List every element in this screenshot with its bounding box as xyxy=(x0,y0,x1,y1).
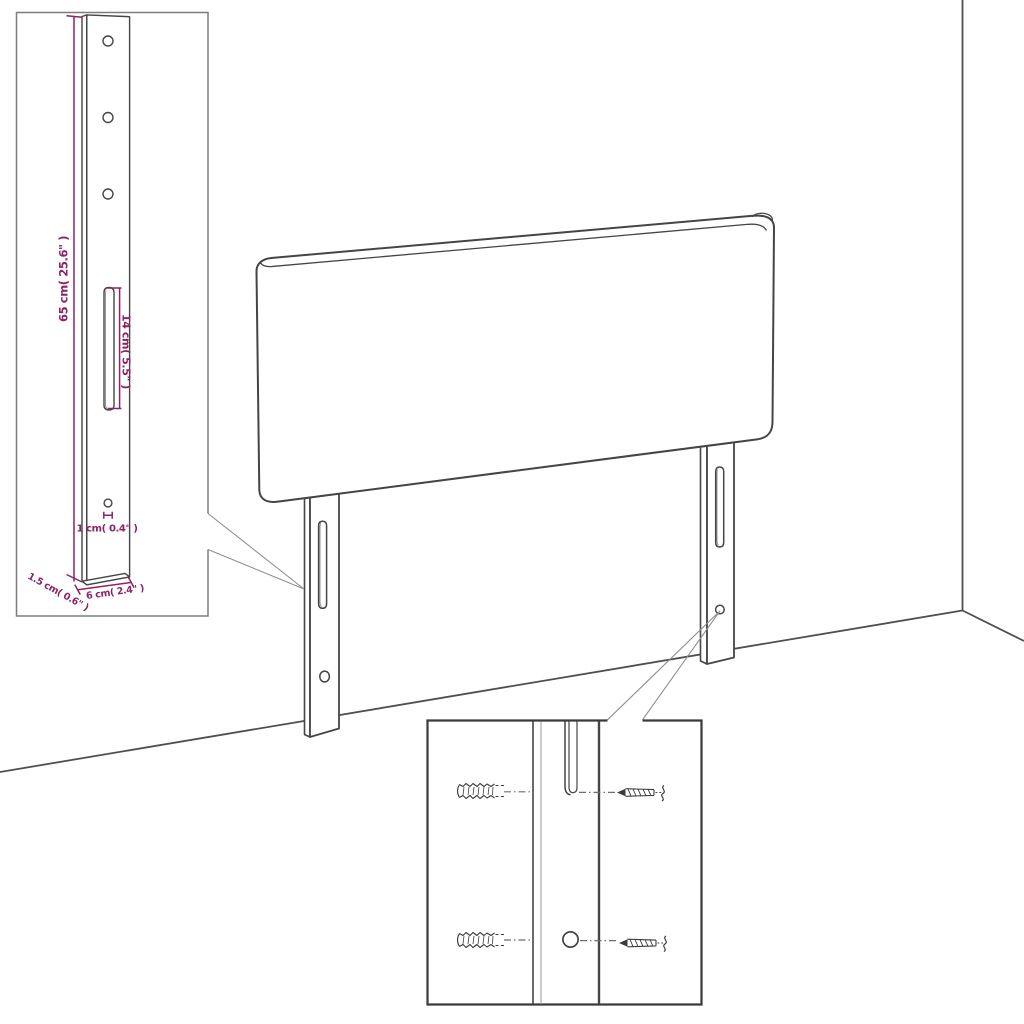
detail-leg-hole-2 xyxy=(103,113,113,123)
detail-leg-side-face xyxy=(82,15,87,585)
headboard-left-leg xyxy=(305,494,340,737)
detail-leg-drawing xyxy=(82,15,130,585)
detail-leg-hole-3 xyxy=(103,189,113,199)
callout-wedge-left xyxy=(208,514,304,590)
slot-dimension-label: 14 cm( 5.5" ) xyxy=(120,314,133,389)
detail-leg-small-hole xyxy=(104,499,112,507)
right-leg-hole xyxy=(716,605,725,614)
height-dimension-label: 65 cm( 25.6" ) xyxy=(57,236,71,322)
hole-dimension-label: 1 cm( 0.4" ) xyxy=(77,524,138,535)
floor-line-right xyxy=(963,611,1024,642)
diagram-canvas: 65 cm( 25.6" ) 14 cm( 5.5" ) 1 cm( 0.4" … xyxy=(0,0,1024,1024)
detail-leg-hole-1 xyxy=(103,36,113,46)
callout-wedge-right xyxy=(608,611,720,720)
headboard-panel xyxy=(256,213,774,502)
left-leg-hole xyxy=(320,671,330,682)
panel-front-face xyxy=(256,216,774,502)
leg-detail-inset: 65 cm( 25.6" ) 14 cm( 5.5" ) 1 cm( 0.4" … xyxy=(17,13,209,617)
mounting-detail-inset xyxy=(428,721,702,1005)
callout-wedges xyxy=(208,514,720,720)
headboard-diagram: 65 cm( 25.6" ) 14 cm( 5.5" ) 1 cm( 0.4" … xyxy=(0,0,1024,1024)
